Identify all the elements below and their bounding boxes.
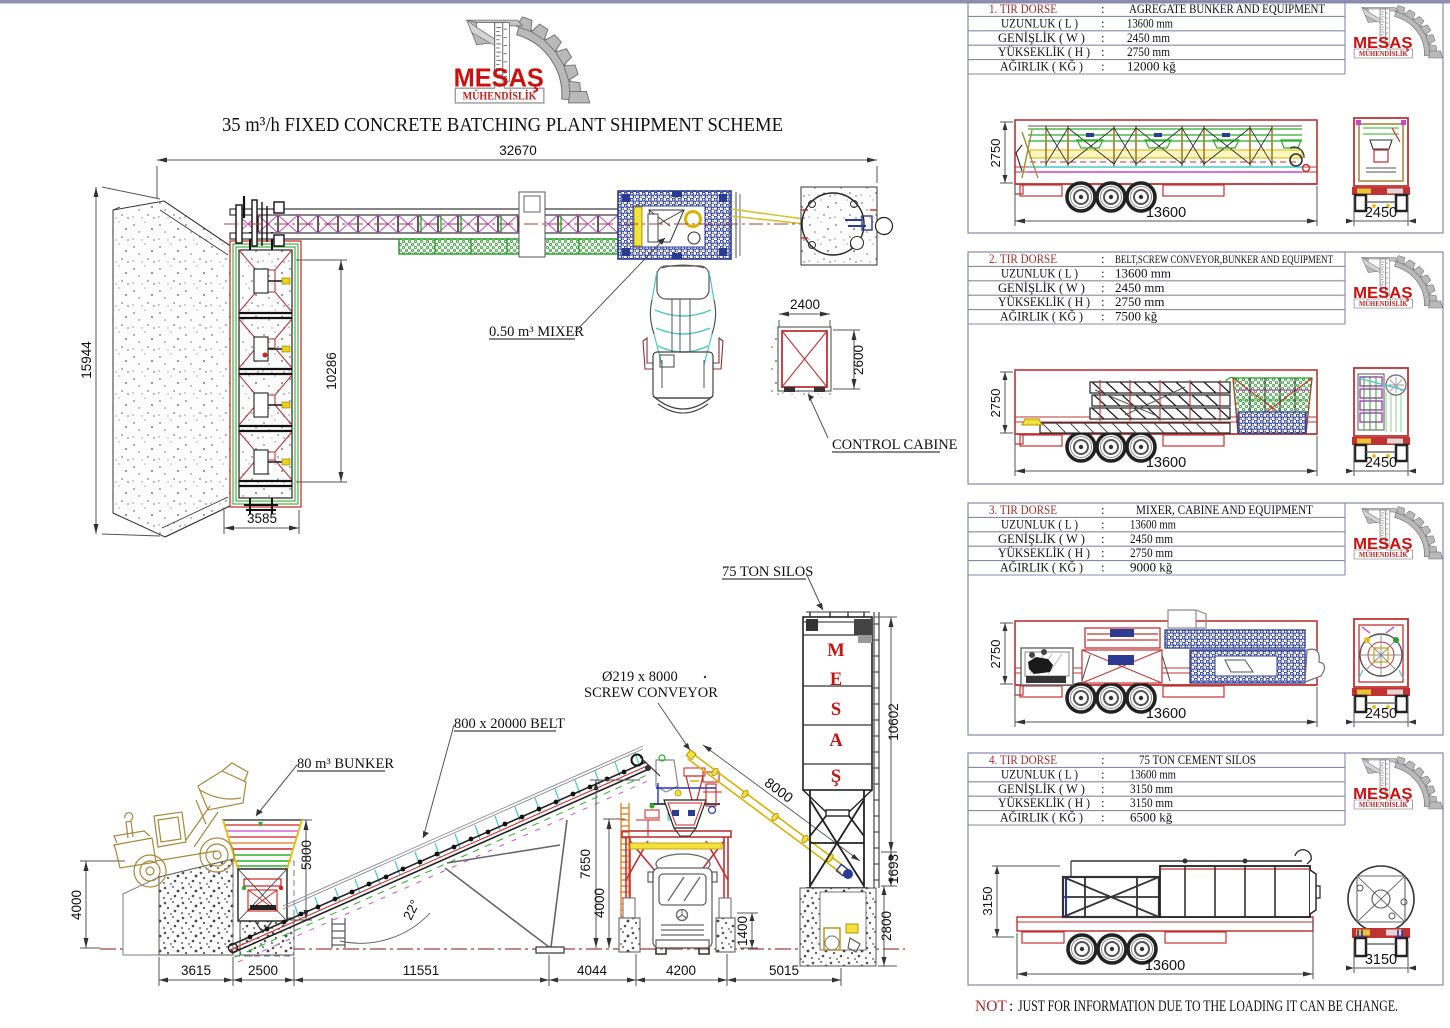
svg-text:2450: 2450: [1365, 455, 1397, 471]
svg-text:M: M: [827, 641, 844, 661]
svg-text:GENİŞLİK ( W ): GENİŞLİK ( W ): [998, 781, 1085, 796]
svg-text::: :: [1101, 560, 1105, 575]
svg-text::: :: [1101, 30, 1105, 45]
svg-text:AĞIRLIK ( KĞ ): AĞIRLIK ( KĞ ): [1000, 59, 1083, 74]
svg-text:3150 mm: 3150 mm: [1130, 781, 1173, 796]
svg-text:Ø219 x 8000: Ø219 x 8000: [602, 669, 678, 685]
svg-text:CONTROL CABINE: CONTROL CABINE: [832, 437, 958, 453]
svg-text:11551: 11551: [403, 963, 440, 978]
svg-text:3150: 3150: [1365, 952, 1397, 968]
svg-text:NOT: NOT: [975, 998, 1007, 1015]
svg-text:MIXER, CABINE AND EQUIPMENT: MIXER, CABINE AND EQUIPMENT: [1136, 502, 1313, 517]
svg-text:800 x 20000 BELT: 800 x 20000 BELT: [454, 716, 565, 732]
svg-text::: :: [1101, 280, 1105, 295]
svg-text:2600: 2600: [851, 345, 866, 375]
svg-text:13600 mm: 13600 mm: [1130, 516, 1176, 531]
svg-text:BELT,SCREW CONVEYOR,BUNKER AND: BELT,SCREW CONVEYOR,BUNKER AND EQUIPMENT: [1115, 252, 1333, 266]
svg-text:7500 kğ: 7500 kğ: [1115, 309, 1158, 324]
svg-text:3. TIR DORSE: 3. TIR DORSE: [989, 502, 1057, 517]
svg-text::: :: [1101, 752, 1105, 767]
svg-text:13600 mm: 13600 mm: [1130, 766, 1176, 781]
svg-text:AGREGATE BUNKER AND EQUIPMENT: AGREGATE BUNKER AND EQUIPMENT: [1129, 1, 1325, 16]
svg-text:80 m³ BUNKER: 80 m³ BUNKER: [297, 756, 394, 772]
svg-text:UZUNLUK ( L ): UZUNLUK ( L ): [1001, 15, 1078, 30]
svg-text::: :: [1101, 810, 1105, 825]
svg-text:2500: 2500: [248, 963, 278, 978]
svg-text:2750 mm: 2750 mm: [1127, 44, 1170, 59]
svg-text:3585: 3585: [247, 511, 277, 526]
svg-text:9000 kğ: 9000 kğ: [1130, 560, 1173, 575]
svg-text::: :: [1101, 265, 1105, 280]
svg-text:2450 mm: 2450 mm: [1127, 30, 1170, 45]
svg-text:7650: 7650: [578, 849, 593, 879]
svg-text:2. TIR DORSE: 2. TIR DORSE: [989, 251, 1057, 266]
svg-text:AĞIRLIK ( KĞ ): AĞIRLIK ( KĞ ): [1000, 560, 1083, 575]
svg-text:UZUNLUK ( L ): UZUNLUK ( L ): [1001, 516, 1078, 531]
svg-text:Ş: Ş: [831, 767, 841, 787]
svg-text:A: A: [829, 731, 843, 751]
svg-text:5015: 5015: [769, 963, 799, 978]
svg-text:4000: 4000: [592, 888, 607, 918]
svg-text:2750 mm: 2750 mm: [1130, 545, 1173, 560]
svg-text:75 TON CEMENT SILOS: 75 TON CEMENT SILOS: [1139, 752, 1256, 767]
svg-text:1693: 1693: [886, 854, 901, 884]
svg-text:5800: 5800: [299, 840, 314, 870]
svg-text:6500 kğ: 6500 kğ: [1130, 810, 1173, 825]
svg-text:GENİŞLİK ( W ): GENİŞLİK ( W ): [998, 531, 1085, 546]
svg-text:13600: 13600: [1145, 958, 1185, 974]
svg-text::: :: [1101, 44, 1105, 59]
svg-text:1. TIR DORSE: 1. TIR DORSE: [989, 1, 1057, 16]
svg-text:2450 mm: 2450 mm: [1115, 280, 1164, 295]
svg-text::: :: [1101, 795, 1105, 810]
svg-text::: :: [1101, 15, 1105, 30]
svg-text:32670: 32670: [499, 143, 537, 158]
svg-text:2450 mm: 2450 mm: [1130, 531, 1173, 546]
svg-text:2750: 2750: [988, 389, 1003, 418]
svg-text:2750: 2750: [988, 139, 1003, 168]
svg-text:2400: 2400: [790, 297, 820, 312]
svg-text:4044: 4044: [577, 963, 608, 978]
svg-text:JUST FOR INFORMATION DUE TO TH: JUST FOR INFORMATION DUE TO THE LOADING …: [1018, 998, 1398, 1015]
svg-text::: :: [1101, 766, 1105, 781]
svg-text:10286: 10286: [324, 352, 339, 390]
svg-text:S: S: [831, 700, 841, 720]
svg-text:75 TON SILOS: 75 TON SILOS: [722, 564, 813, 580]
svg-text:3150: 3150: [980, 887, 995, 916]
svg-text::: :: [1101, 781, 1105, 796]
svg-text:YÜKSEKLİK ( H ): YÜKSEKLİK ( H ): [998, 44, 1090, 59]
svg-text:4. TIR DORSE: 4. TIR DORSE: [989, 752, 1057, 767]
svg-text:10602: 10602: [886, 703, 901, 741]
svg-text:4200: 4200: [666, 963, 696, 978]
svg-text:YÜKSEKLİK ( H ): YÜKSEKLİK ( H ): [998, 294, 1090, 309]
svg-text::: :: [1101, 502, 1105, 517]
svg-text:13600 mm: 13600 mm: [1127, 15, 1173, 30]
svg-text:13600: 13600: [1146, 706, 1186, 722]
svg-text:3615: 3615: [181, 963, 211, 978]
svg-text:2450: 2450: [1365, 205, 1397, 221]
svg-text:12000 kğ: 12000 kğ: [1127, 59, 1176, 74]
svg-text:UZUNLUK ( L ): UZUNLUK ( L ): [1001, 265, 1078, 280]
svg-text:2800: 2800: [879, 911, 894, 941]
svg-text::: :: [1101, 531, 1105, 546]
svg-text:AĞIRLIK ( KĞ ): AĞIRLIK ( KĞ ): [1000, 810, 1083, 825]
svg-text::: :: [1101, 545, 1105, 560]
svg-text:YÜKSEKLİK ( H ): YÜKSEKLİK ( H ): [998, 545, 1090, 560]
svg-text:15944: 15944: [79, 341, 94, 379]
svg-text:13600: 13600: [1146, 205, 1186, 221]
svg-text:GENİŞLİK ( W ): GENİŞLİK ( W ): [998, 280, 1085, 295]
svg-text:YÜKSEKLİK ( H ): YÜKSEKLİK ( H ): [998, 795, 1090, 810]
svg-text::: :: [1101, 251, 1105, 266]
svg-text:SCREW CONVEYOR: SCREW CONVEYOR: [584, 685, 718, 701]
svg-text:13600: 13600: [1146, 455, 1186, 471]
svg-text:0.50 m³ MIXER: 0.50 m³ MIXER: [489, 324, 584, 340]
svg-text:35 m³/h FIXED CONCRETE BATCHIN: 35 m³/h FIXED CONCRETE BATCHING PLANT SH…: [222, 114, 783, 136]
svg-text::: :: [1101, 309, 1105, 324]
svg-text:2750 mm: 2750 mm: [1115, 294, 1164, 309]
svg-text:2750: 2750: [988, 640, 1003, 669]
svg-text:13600 mm: 13600 mm: [1115, 265, 1171, 280]
svg-text:E: E: [830, 670, 842, 690]
svg-text::: :: [1101, 59, 1105, 74]
svg-text:3150 mm: 3150 mm: [1130, 795, 1173, 810]
svg-text::: :: [1009, 998, 1013, 1015]
svg-text::: :: [1101, 516, 1105, 531]
svg-text:2450: 2450: [1365, 706, 1397, 722]
svg-text:UZUNLUK ( L ): UZUNLUK ( L ): [1001, 766, 1078, 781]
svg-text:4000: 4000: [69, 890, 84, 920]
svg-text:1400: 1400: [735, 916, 750, 946]
svg-text::: :: [1101, 294, 1105, 309]
svg-text:GENİŞLİK ( W ): GENİŞLİK ( W ): [998, 30, 1085, 45]
svg-text:AĞIRLIK ( KĞ ): AĞIRLIK ( KĞ ): [1000, 309, 1083, 324]
svg-text::: :: [1101, 1, 1105, 16]
